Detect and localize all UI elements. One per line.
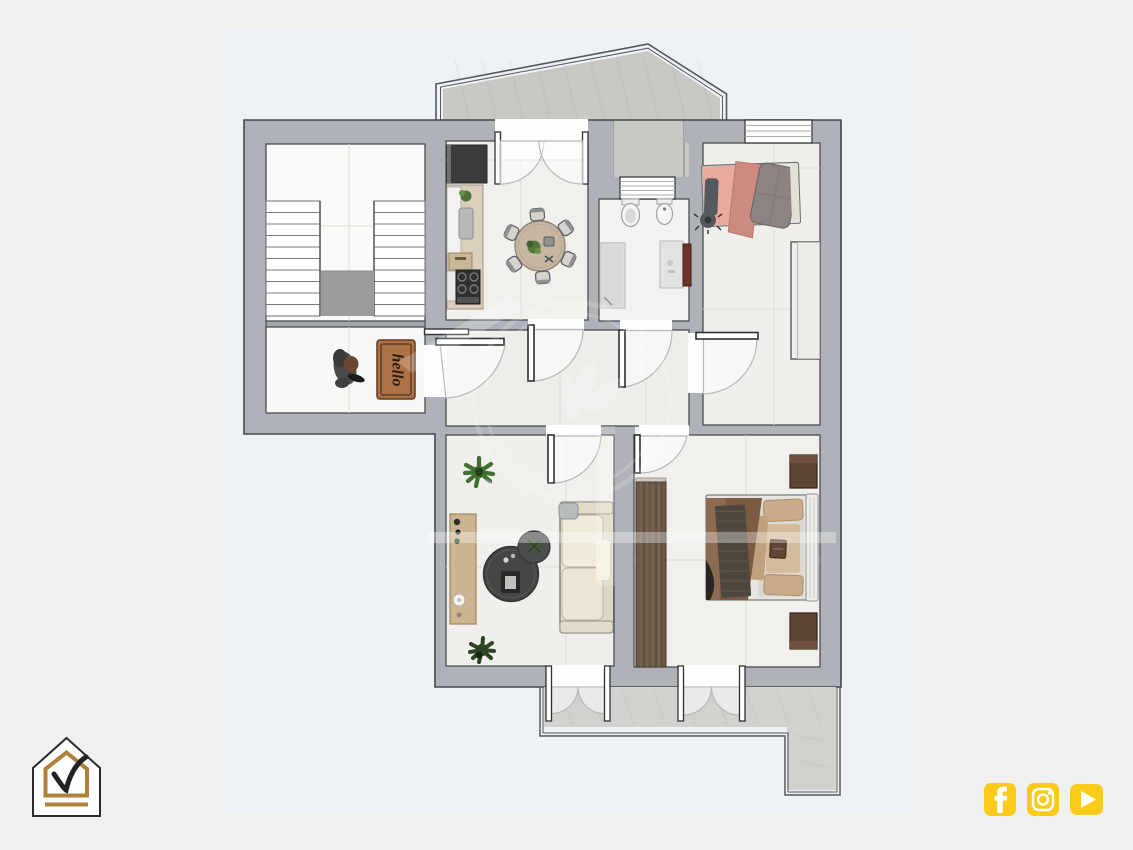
svg-text:hello: hello	[388, 354, 405, 387]
